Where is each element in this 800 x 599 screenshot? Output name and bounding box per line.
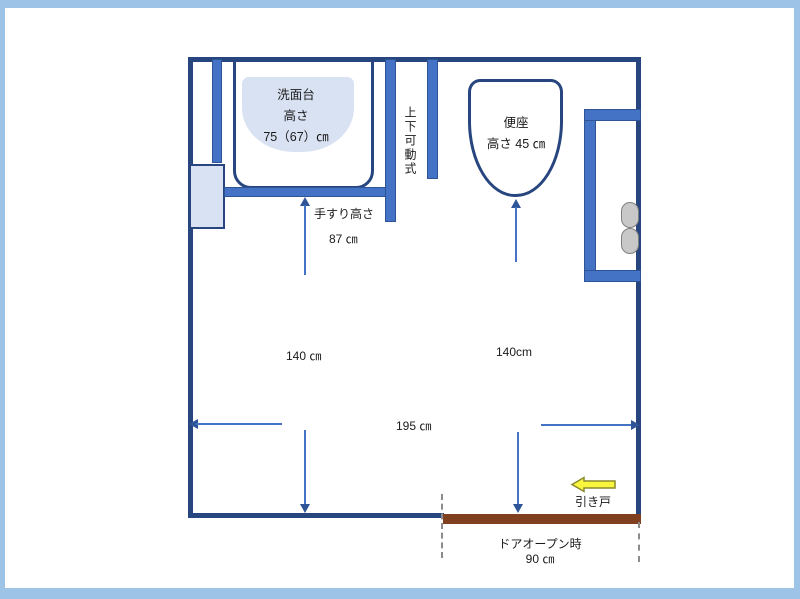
slide-frame-right bbox=[794, 0, 800, 599]
door-open-label: ドアオープン時 bbox=[459, 537, 621, 552]
width-right-arrow-icon bbox=[631, 420, 640, 430]
door-open-width: 90 ㎝ bbox=[459, 552, 621, 567]
sliding-door-label: 引き戸 bbox=[575, 495, 611, 510]
slide-frame-left bbox=[0, 0, 5, 599]
adjustable-unit-label: 上下可動式 bbox=[401, 106, 419, 190]
slide-direction-arrow-icon bbox=[570, 476, 617, 493]
handrail-height: 87 ㎝ bbox=[329, 232, 358, 247]
toilet-name: 便座 bbox=[466, 113, 566, 134]
width-line-right bbox=[541, 424, 633, 426]
slide-frame-top bbox=[0, 0, 800, 8]
handrail-label: 手すり高さ bbox=[314, 207, 374, 222]
toilet-height: 高さ 45 ㎝ bbox=[466, 134, 566, 155]
storage-frame-top bbox=[584, 109, 641, 121]
washbasin-height-value: 75（67）㎝ bbox=[236, 127, 356, 148]
left-down-arrow-shaft bbox=[304, 430, 306, 505]
dim-right-depth: 140cm bbox=[496, 345, 532, 360]
toilet-label: 便座 高さ 45 ㎝ bbox=[466, 113, 566, 155]
dim-width: 195 ㎝ bbox=[396, 419, 431, 434]
toilet-arrow-shaft bbox=[515, 207, 517, 262]
width-line-left bbox=[196, 423, 282, 425]
wall-left bbox=[188, 57, 193, 518]
washbasin-label: 洗面台 高さ 75（67）㎝ bbox=[236, 85, 356, 148]
storage-frame-left bbox=[584, 109, 596, 282]
door-extent-dash-right bbox=[638, 522, 640, 562]
washbasin-height-label: 高さ bbox=[236, 106, 356, 127]
adjustable-panel-bar bbox=[427, 59, 438, 179]
right-down-arrow-shaft bbox=[517, 432, 519, 505]
wall-right bbox=[636, 57, 641, 518]
dim-left-depth: 140 ㎝ bbox=[286, 349, 321, 364]
door-extent-dash-left bbox=[441, 494, 443, 558]
partition-wall-bar bbox=[385, 59, 396, 222]
slide-frame-bottom bbox=[0, 588, 800, 599]
wall-niche-bar bbox=[212, 59, 222, 163]
right-down-arrow-icon bbox=[513, 504, 523, 513]
left-down-arrow-icon bbox=[300, 504, 310, 513]
wall-bottom bbox=[188, 513, 444, 518]
handrail-arrow-shaft bbox=[304, 205, 306, 275]
paper-roll-icon bbox=[621, 228, 639, 254]
wall-cabinet-box bbox=[189, 164, 225, 229]
floor-plan-canvas: 洗面台 高さ 75（67）㎝ 上下可動式 便座 高さ 45 ㎝ 手すり高さ 87… bbox=[0, 0, 800, 599]
sliding-door-bar bbox=[443, 514, 641, 524]
handrail-bar bbox=[224, 187, 386, 197]
paper-roll-icon bbox=[621, 202, 639, 228]
washbasin-name: 洗面台 bbox=[236, 85, 356, 106]
storage-frame-bottom bbox=[584, 270, 641, 282]
